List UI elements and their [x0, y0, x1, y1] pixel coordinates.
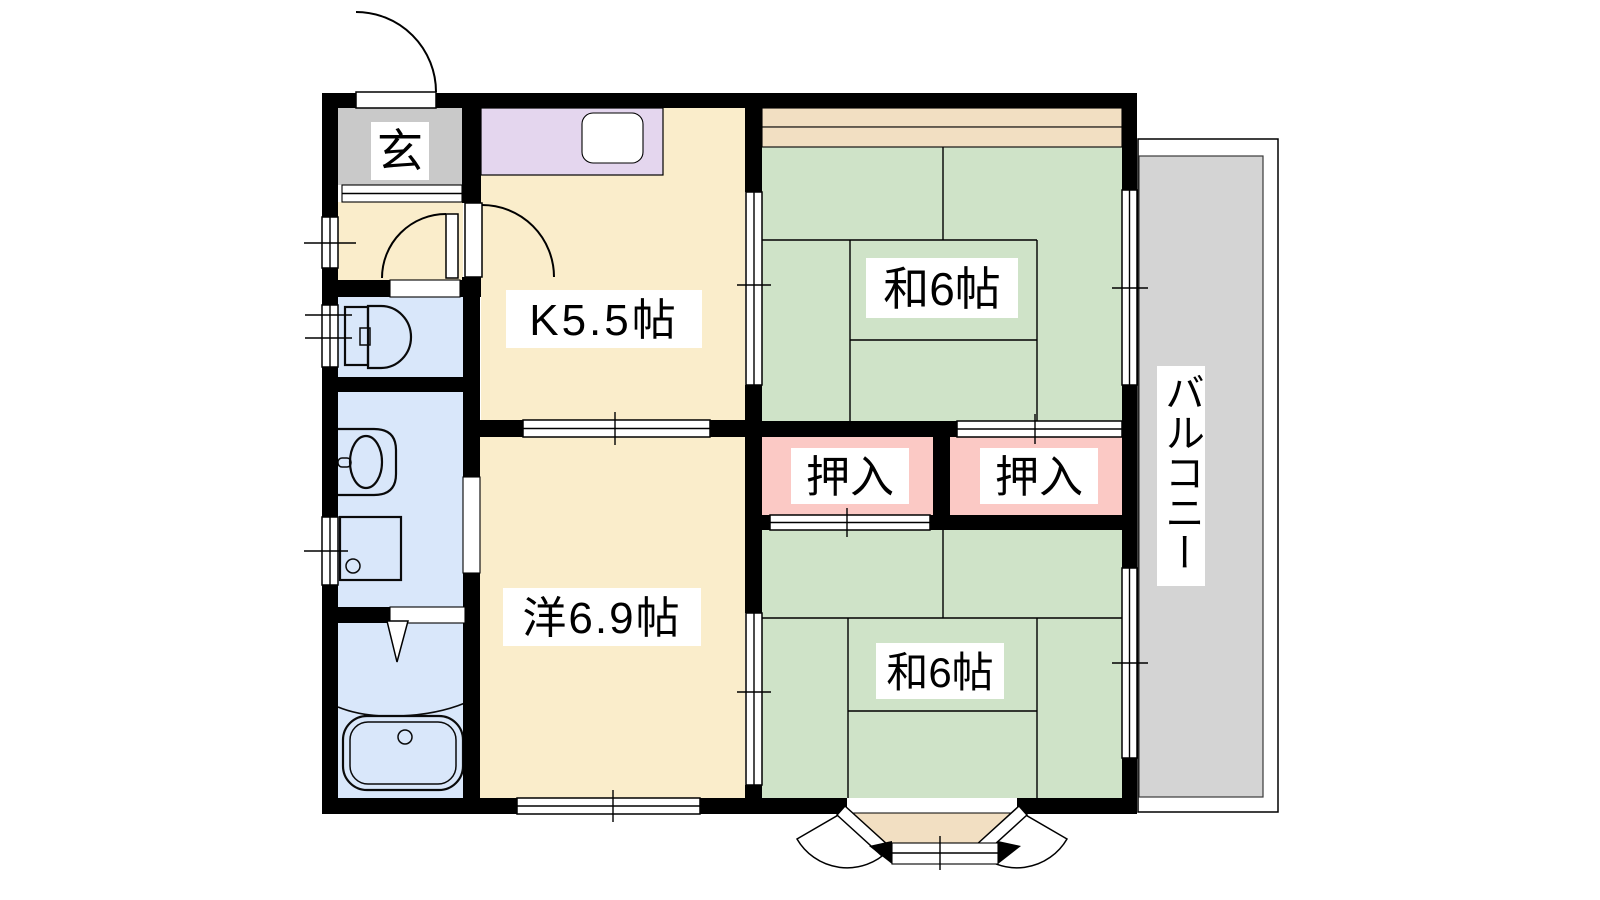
alcove-strips	[762, 108, 1122, 147]
label-balcony: バルコニー	[1159, 372, 1203, 572]
floor-plan-canvas: 玄 K5.5帖 和6帖 押入 押入 洋6.9帖 和6帖 バルコニー	[0, 0, 1600, 900]
label-japanese-room-bottom: 和6帖	[886, 649, 993, 696]
label-closet-right: 押入	[995, 453, 1083, 502]
washroom-doorway	[463, 477, 480, 573]
floor-plan-page: 玄 K5.5帖 和6帖 押入 押入 洋6.9帖 和6帖 バルコニー	[0, 0, 1600, 900]
entrance-step	[342, 185, 462, 202]
label-kitchen: K5.5帖	[529, 296, 679, 345]
kitchen-sink-icon	[582, 113, 643, 163]
bay-window	[797, 806, 1067, 870]
room-bath-floor	[338, 623, 465, 798]
kitchen-counter	[481, 108, 663, 175]
label-japanese-room-top: 和6帖	[883, 263, 1001, 315]
label-genkan: 玄	[377, 125, 423, 177]
entrance-door	[356, 12, 436, 108]
label-closet-left: 押入	[806, 453, 894, 502]
label-western-room: 洋6.9帖	[522, 594, 681, 643]
